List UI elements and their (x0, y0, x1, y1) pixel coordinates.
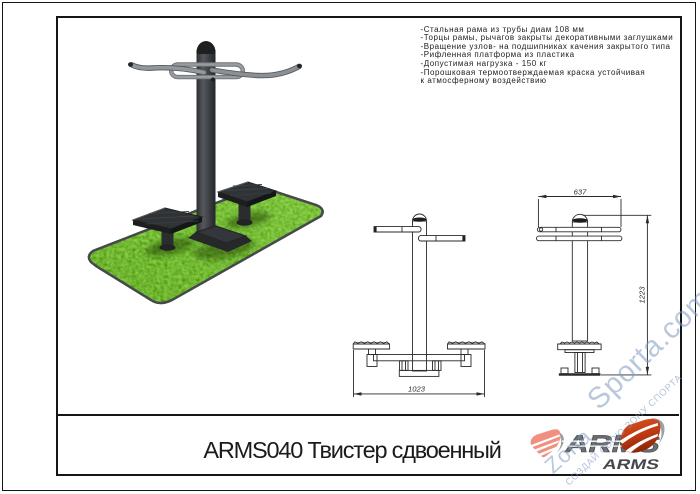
svg-text:Sporta.com: Sporta.com (581, 282, 700, 416)
